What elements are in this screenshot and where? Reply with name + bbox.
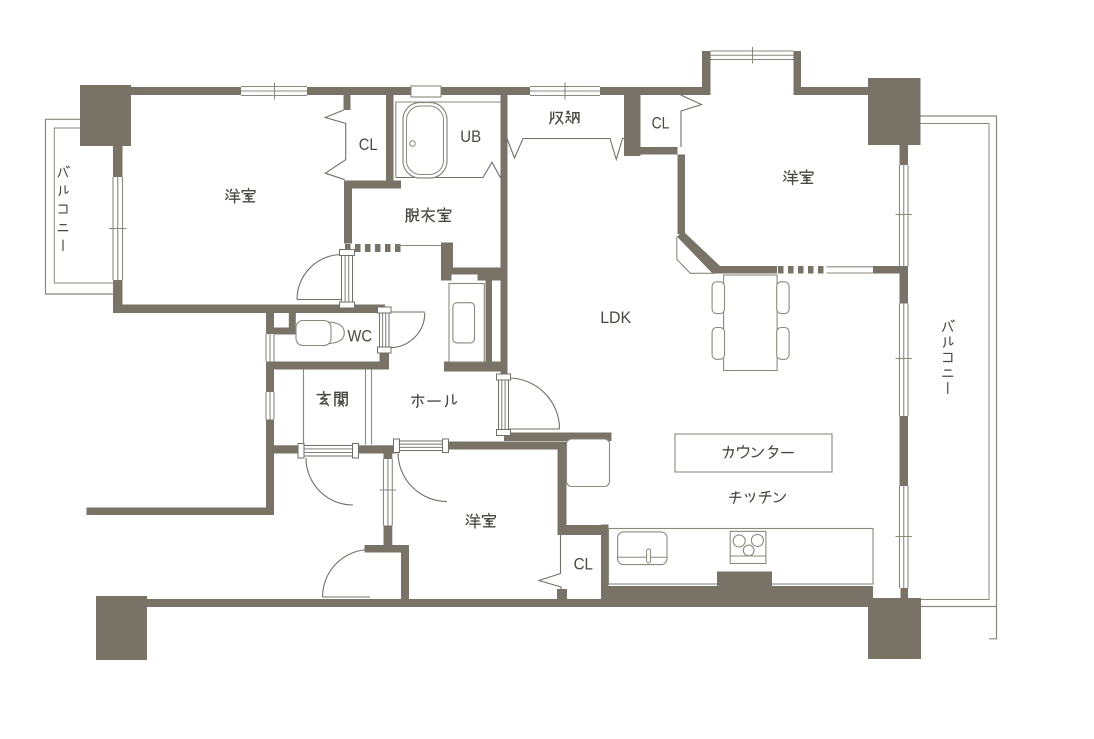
- svg-text:CL: CL: [359, 135, 378, 154]
- svg-text:WC: WC: [348, 327, 373, 346]
- svg-text:UB: UB: [460, 127, 481, 146]
- svg-text:LDK: LDK: [600, 308, 632, 327]
- svg-text:CL: CL: [574, 555, 593, 574]
- svg-text:CL: CL: [652, 114, 670, 133]
